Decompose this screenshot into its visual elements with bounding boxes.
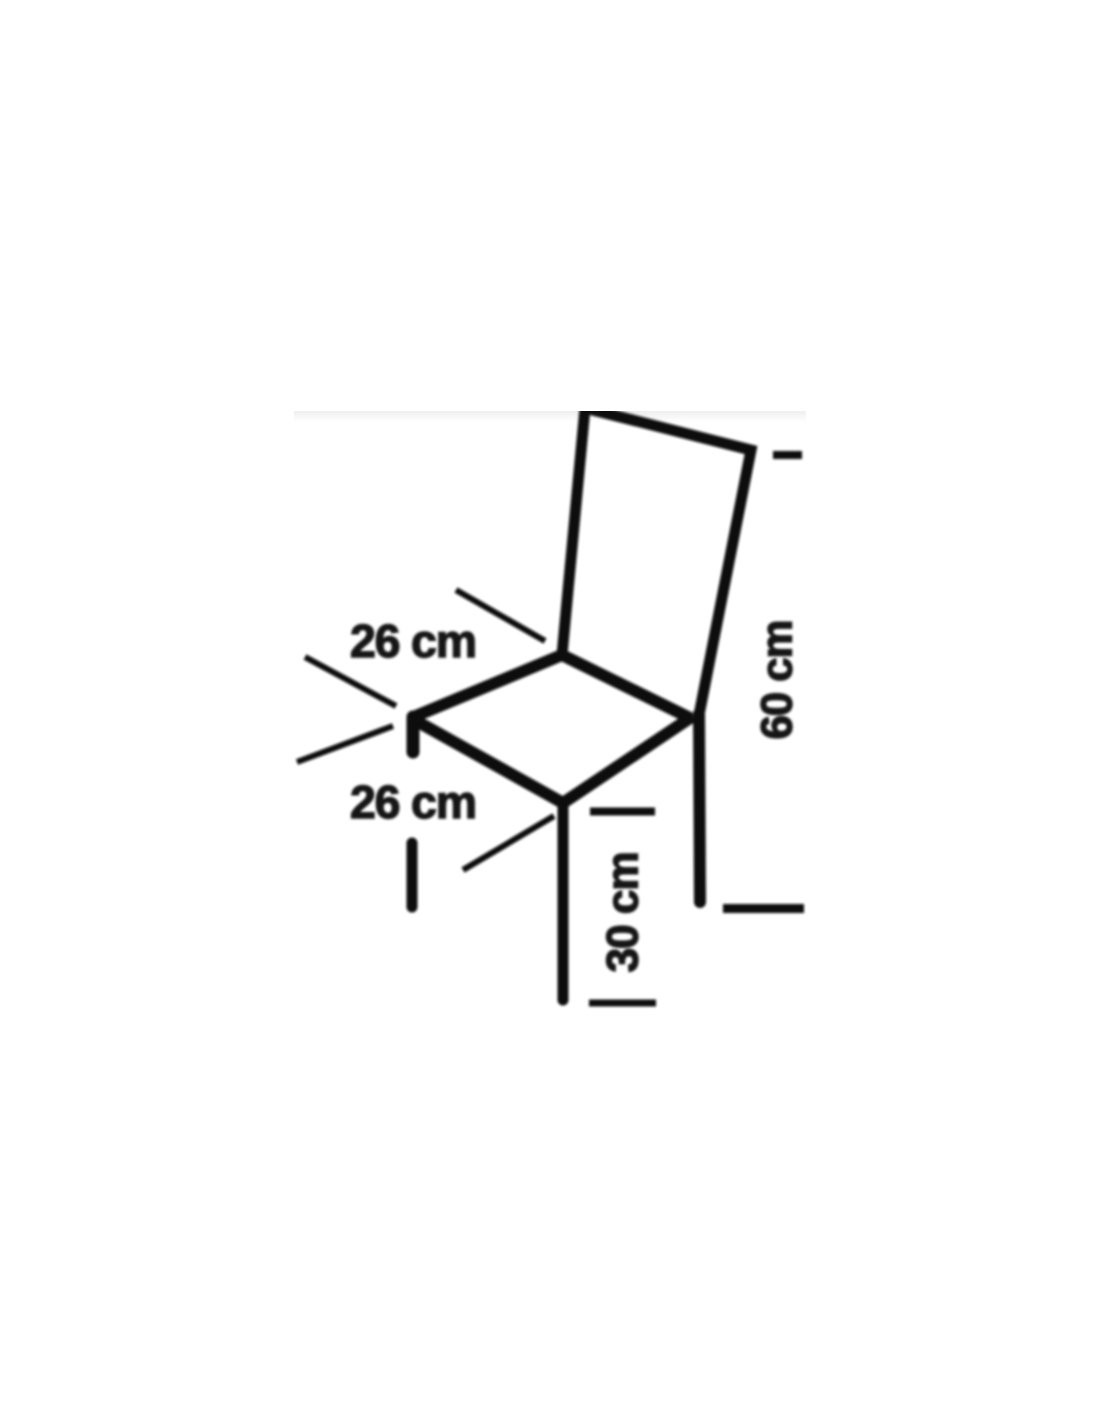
svg-text:26 cm: 26 cm [350, 615, 476, 667]
svg-text:30 cm: 30 cm [599, 852, 648, 972]
svg-text:26 cm: 26 cm [350, 776, 476, 828]
svg-text:60 cm: 60 cm [753, 621, 802, 740]
